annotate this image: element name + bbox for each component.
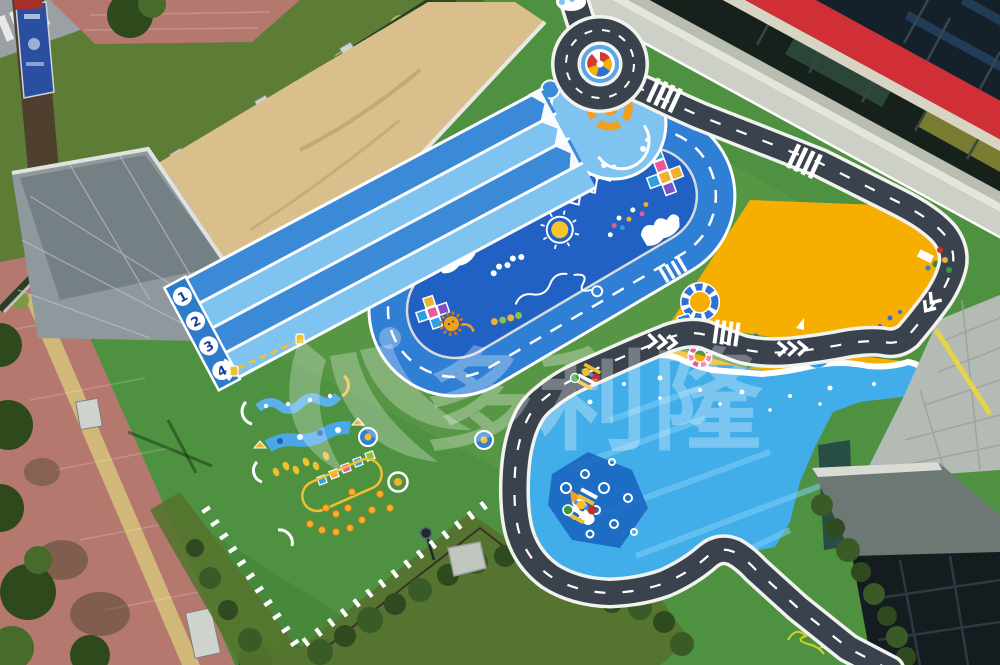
yellow-dot — [577, 501, 586, 510]
aerial-playground-photo: 1 2 3 4 — [0, 0, 1000, 665]
playground-scene: 1 2 3 4 — [0, 0, 1000, 665]
tree-shadow — [70, 592, 130, 636]
roundabout — [566, 30, 634, 98]
tree-shadow — [24, 458, 60, 486]
red-dot — [588, 506, 597, 515]
green-dot — [563, 505, 573, 515]
